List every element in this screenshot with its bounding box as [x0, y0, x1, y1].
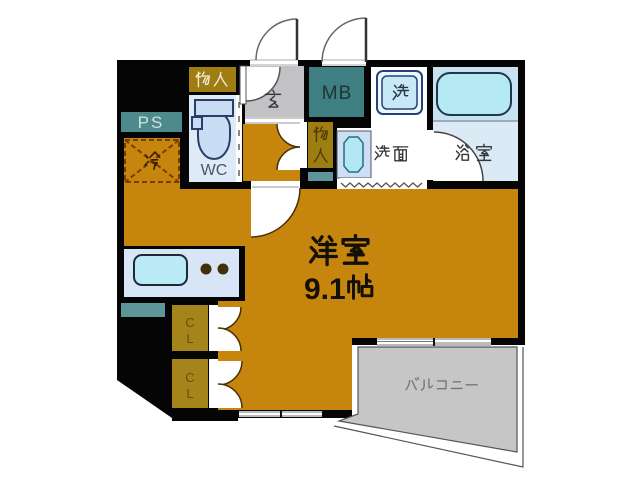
svg-text:C: C [185, 370, 194, 385]
svg-text:9.1: 9.1 [304, 273, 346, 306]
svg-text:L: L [186, 386, 193, 401]
svg-text:C: C [185, 315, 194, 330]
svg-text:PS: PS [138, 113, 165, 132]
svg-text:L: L [186, 331, 193, 346]
svg-text:MB: MB [322, 83, 353, 104]
svg-text:WC: WC [201, 162, 228, 179]
